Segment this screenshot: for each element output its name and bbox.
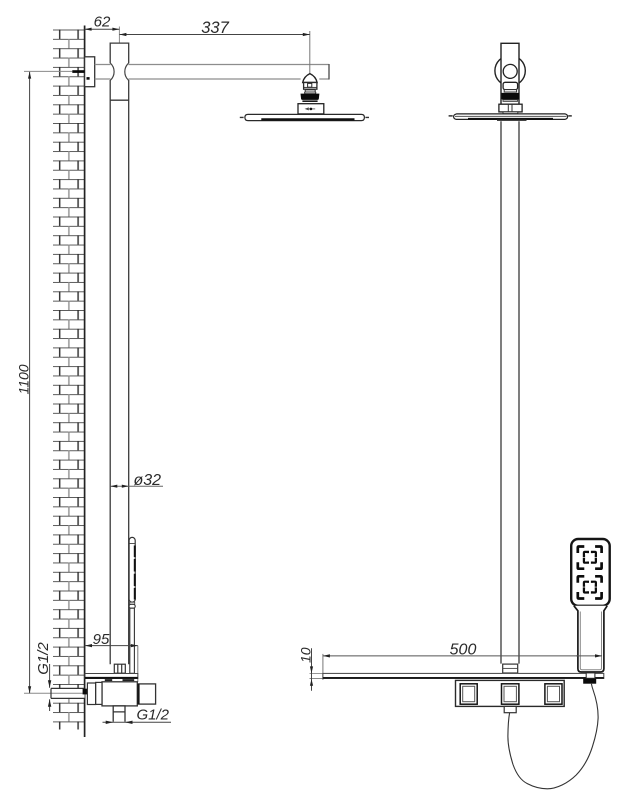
svg-text:10: 10 bbox=[298, 647, 314, 663]
svg-text:62: 62 bbox=[94, 14, 111, 31]
svg-text:G1/2: G1/2 bbox=[35, 642, 52, 675]
svg-text:G1/2: G1/2 bbox=[137, 707, 170, 724]
svg-text:500: 500 bbox=[450, 641, 477, 658]
svg-text:95: 95 bbox=[93, 631, 110, 648]
svg-text:337: 337 bbox=[201, 19, 229, 37]
svg-text:ø32: ø32 bbox=[134, 472, 162, 489]
svg-text:1100: 1100 bbox=[16, 364, 32, 394]
